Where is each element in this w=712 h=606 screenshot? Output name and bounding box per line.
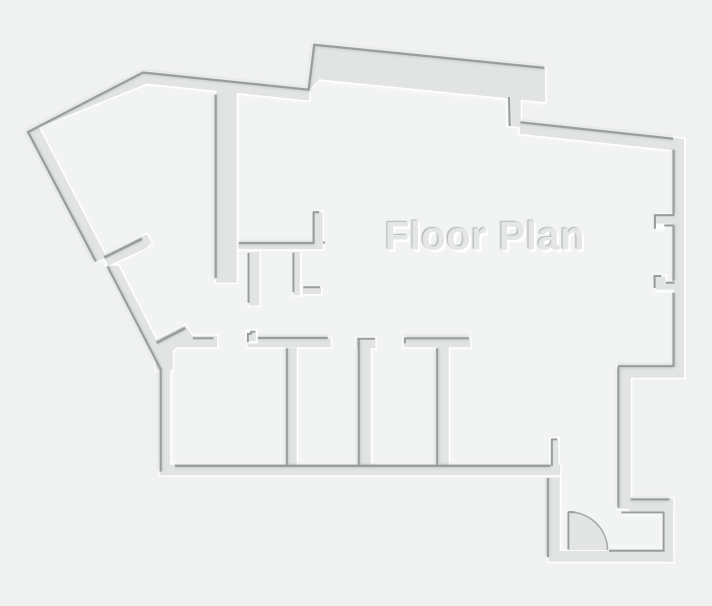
svg-text:Floor Plan: Floor Plan	[385, 215, 585, 259]
